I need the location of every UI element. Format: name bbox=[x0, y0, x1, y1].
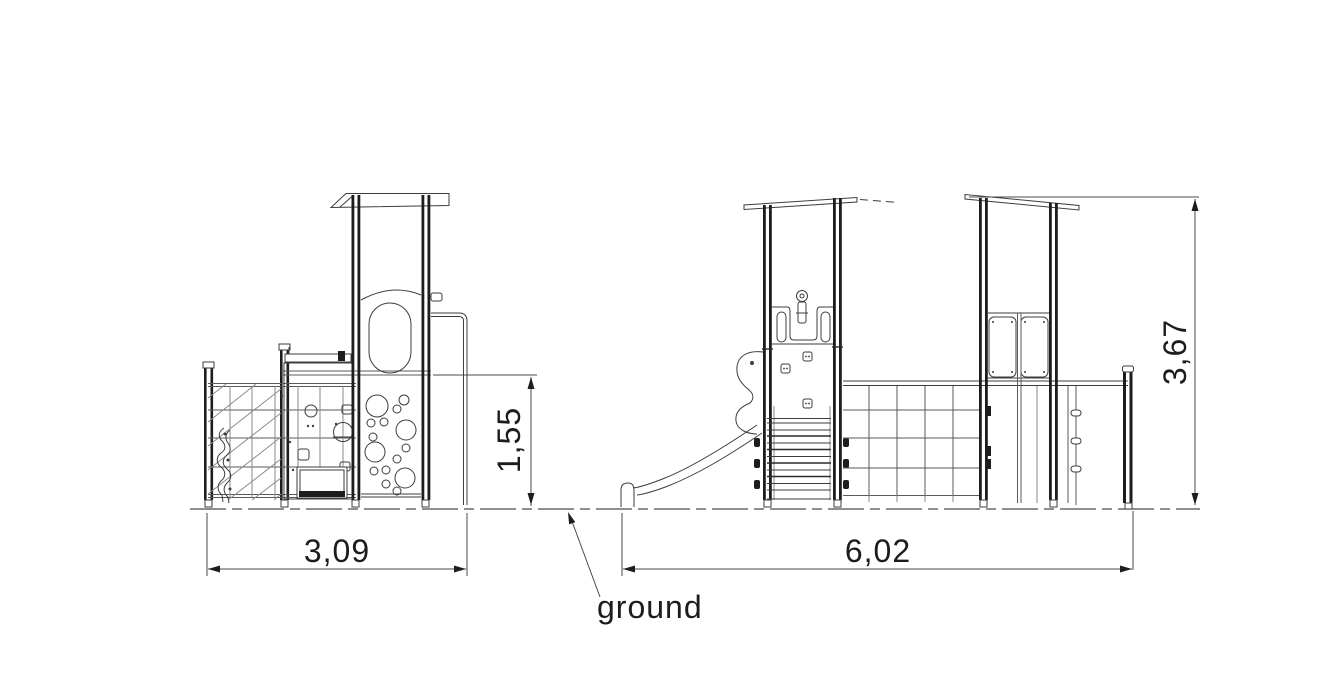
net-hatch bbox=[208, 384, 281, 500]
dimension-label-3-67: 3,67 bbox=[1157, 319, 1193, 385]
dimension-label-3-09: 3,09 bbox=[304, 533, 370, 569]
dimension-left-width: 3,09 bbox=[207, 513, 467, 576]
tower-side-view bbox=[331, 194, 449, 508]
climbing-holes bbox=[365, 395, 416, 495]
rear-tower bbox=[965, 195, 1081, 508]
knotted-rope bbox=[1071, 386, 1081, 505]
right-end-post bbox=[1123, 366, 1134, 509]
drawing-page: 3,09 1,55 6,02 3,67 ground bbox=[0, 0, 1333, 687]
oval-window bbox=[369, 303, 411, 373]
front-tower bbox=[744, 198, 898, 508]
slide bbox=[621, 352, 763, 507]
slide-end-post bbox=[621, 483, 634, 507]
side-wall bbox=[431, 313, 467, 505]
slide-side-panel bbox=[736, 352, 763, 434]
post-tab bbox=[431, 293, 442, 301]
square-holds bbox=[781, 352, 812, 408]
net-grid-front bbox=[843, 386, 979, 502]
dimension-label-6-02: 6,02 bbox=[845, 533, 911, 569]
ground-label: ground bbox=[597, 589, 703, 625]
dimension-total-height: 3,67 bbox=[969, 197, 1199, 505]
climbing-board-profile bbox=[217, 428, 231, 503]
left-view-side-elevation bbox=[203, 194, 467, 508]
technical-drawing-canvas: 3,09 1,55 6,02 3,67 ground bbox=[0, 0, 1333, 687]
telescope bbox=[796, 291, 808, 324]
dimension-platform-height: 1,55 bbox=[433, 375, 537, 506]
roof bbox=[331, 194, 449, 208]
crawl-box bbox=[297, 467, 347, 498]
dimension-total-width: 6,02 bbox=[622, 511, 1133, 576]
handrail bbox=[285, 347, 351, 362]
dimension-label-1-55: 1,55 bbox=[491, 407, 527, 473]
right-view-front-elevation bbox=[621, 195, 1134, 510]
